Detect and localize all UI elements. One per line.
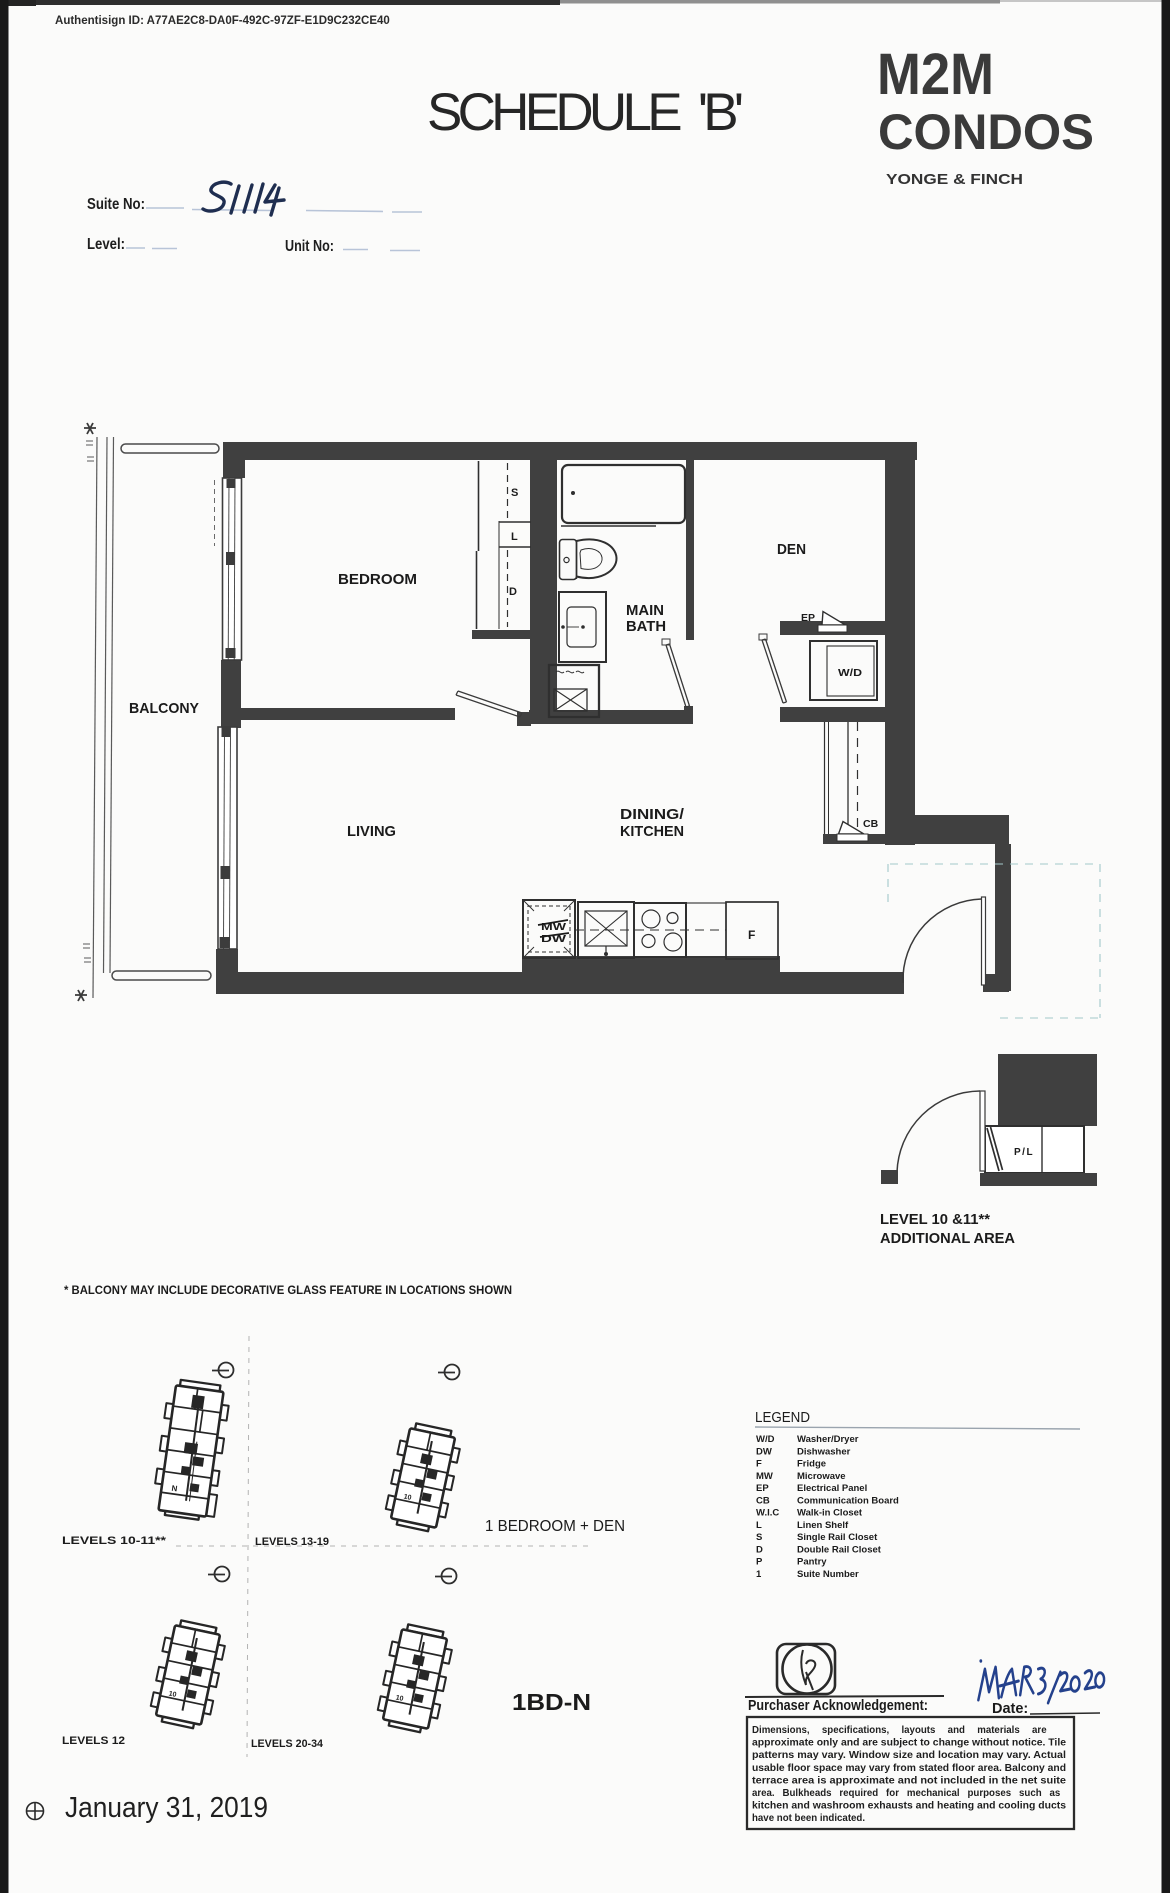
svg-text:Date:: Date: (992, 1701, 1028, 1717)
svg-text:W.I.C: W.I.C (756, 1508, 779, 1519)
svg-text:Single Rail Closet: Single Rail Closet (797, 1532, 878, 1543)
svg-text:BATH: BATH (626, 618, 666, 635)
svg-text:Double Rail Closet: Double Rail Closet (797, 1544, 882, 1555)
svg-text:LIVING: LIVING (347, 823, 396, 840)
svg-text:W/D: W/D (756, 1434, 775, 1445)
svg-text:CB: CB (863, 818, 879, 830)
svg-text:KITCHEN: KITCHEN (620, 823, 684, 840)
svg-text:S: S (756, 1532, 762, 1543)
svg-text:EP: EP (801, 612, 815, 624)
svg-text:Purchaser Acknowledgement:: Purchaser Acknowledgement: (748, 1698, 928, 1714)
svg-text:Communication Board: Communication Board (797, 1495, 899, 1506)
svg-text:LEVELS 13-19: LEVELS 13-19 (255, 1536, 329, 1548)
svg-text:F: F (748, 928, 755, 942)
svg-text:Microwave: Microwave (797, 1471, 846, 1482)
svg-text:patterns may vary. Window size: patterns may vary. Window size and locat… (752, 1750, 1066, 1761)
svg-text:1BD-N: 1BD-N (512, 1689, 591, 1715)
svg-text:Dishwasher: Dishwasher (797, 1446, 851, 1457)
svg-text:Washer/Dryer: Washer/Dryer (797, 1434, 859, 1445)
svg-text:L: L (511, 531, 518, 543)
svg-text:LEVEL 10 &11**: LEVEL 10 &11** (880, 1211, 990, 1228)
svg-text:M2M: M2M (877, 42, 994, 107)
svg-text:LEVELS 20-34: LEVELS 20-34 (251, 1738, 324, 1750)
svg-text:L: L (756, 1520, 762, 1531)
svg-text:SCHEDULE 'B': SCHEDULE 'B' (427, 83, 744, 142)
svg-text:BALCONY: BALCONY (129, 700, 199, 717)
svg-text:terrace area is approximate an: terrace area is approximate and not incl… (752, 1775, 1067, 1786)
svg-text:S: S (511, 487, 518, 499)
svg-text:BEDROOM: BEDROOM (338, 571, 417, 588)
svg-text:CB: CB (756, 1495, 770, 1506)
svg-text:Dimensions, specifications, la: Dimensions, specifications, layouts and … (752, 1725, 1047, 1736)
svg-text:Suite No:: Suite No: (87, 196, 145, 213)
svg-text:D: D (756, 1544, 763, 1555)
svg-text:1: 1 (756, 1569, 762, 1580)
svg-text:DINING/: DINING/ (620, 806, 685, 823)
svg-text:LEGEND: LEGEND (755, 1409, 810, 1426)
svg-text:P/L: P/L (1014, 1147, 1034, 1158)
svg-text:DW: DW (756, 1446, 772, 1457)
svg-text:Unit No:: Unit No: (285, 238, 334, 255)
svg-text:W/D: W/D (838, 667, 862, 679)
svg-text:Fridge: Fridge (797, 1459, 826, 1470)
svg-text:Walk-in Closet: Walk-in Closet (797, 1508, 863, 1519)
svg-text:P: P (756, 1557, 763, 1568)
svg-text:area. Bulkheads required for m: area. Bulkheads required for mechanical … (752, 1788, 1060, 1799)
svg-text:Level:: Level: (87, 236, 125, 253)
svg-text:MW: MW (756, 1471, 773, 1482)
svg-text:LEVELS 10-11**: LEVELS 10-11** (62, 1535, 167, 1547)
svg-text:YONGE & FINCH: YONGE & FINCH (886, 171, 1023, 188)
svg-text:Linen Shelf: Linen Shelf (797, 1520, 849, 1531)
svg-text:LEVELS 12: LEVELS 12 (62, 1735, 125, 1747)
svg-text:1 BEDROOM + DEN: 1 BEDROOM + DEN (485, 1518, 625, 1535)
svg-text:DEN: DEN (777, 541, 806, 558)
svg-text:ADDITIONAL AREA: ADDITIONAL AREA (880, 1230, 1015, 1247)
svg-text:Electrical Panel: Electrical Panel (797, 1483, 867, 1494)
svg-text:MAIN: MAIN (626, 602, 664, 619)
svg-text:have not been indicated.: have not been indicated. (752, 1813, 865, 1824)
svg-text:F: F (756, 1459, 762, 1470)
svg-text:Suite Number: Suite Number (797, 1569, 859, 1580)
svg-text:Authentisign ID: A77AE2C8-DA0F: Authentisign ID: A77AE2C8-DA0F-492C-97ZF… (55, 15, 390, 27)
svg-text:kitchen and washroom exhausts: kitchen and washroom exhausts and heatin… (752, 1801, 1066, 1812)
svg-text:EP: EP (756, 1483, 769, 1494)
svg-text:* BALCONY MAY INCLUDE DECORATI: * BALCONY MAY INCLUDE DECORATIVE GLASS F… (64, 1283, 512, 1297)
svg-text:usable floor space may vary fr: usable floor space may vary from stated … (752, 1763, 1066, 1774)
svg-text:CONDOS: CONDOS (878, 104, 1094, 160)
svg-text:D: D (509, 586, 517, 598)
svg-text:approximate only and are subje: approximate only and are subject to chan… (752, 1738, 1067, 1749)
svg-text:January 31, 2019: January 31, 2019 (65, 1792, 268, 1824)
svg-text:Pantry: Pantry (797, 1557, 827, 1568)
